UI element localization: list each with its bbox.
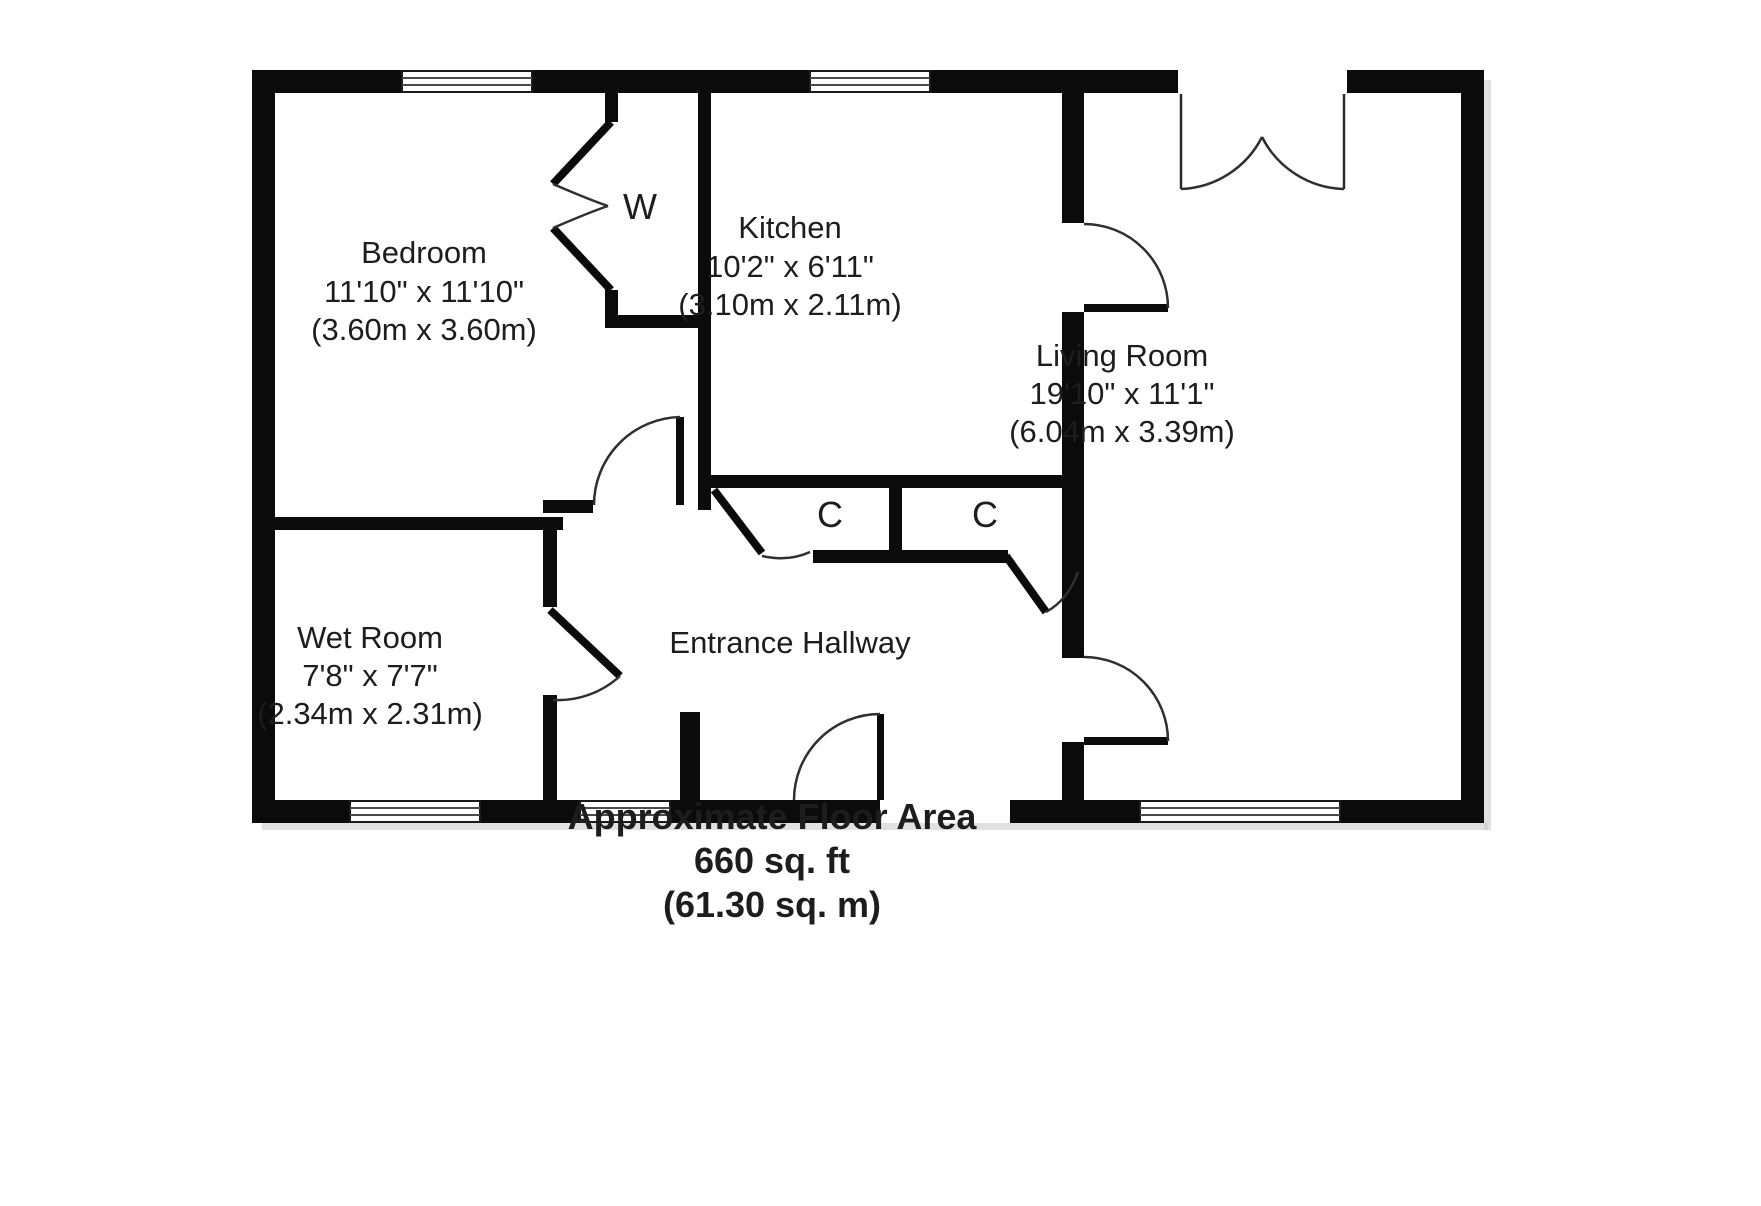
front-door-icon (794, 714, 884, 800)
room-dim-imperial: 7'8" x 7'7" (302, 658, 438, 693)
room-dim-imperial: 10'2" x 6'11" (706, 249, 874, 284)
cupboard-left-label: C (817, 494, 843, 535)
window-bedroom-icon (402, 71, 532, 92)
room-dim-metric: (2.34m x 2.31m) (257, 696, 483, 731)
floor-area-sqft: 660 sq. ft (694, 840, 850, 881)
window-kitchen-icon (810, 71, 930, 92)
window-wetroom-icon (350, 801, 480, 822)
floor-plan-page: Bedroom 11'10" x 11'10" (3.60m x 3.60m) … (0, 0, 1761, 1206)
room-dim-metric: (6.04m x 3.39m) (1009, 414, 1235, 449)
wet-room-label: Wet Room 7'8" x 7'7" (2.34m x 2.31m) (257, 620, 483, 731)
room-dim-imperial: 11'10" x 11'10" (324, 274, 524, 309)
floor-plan-drawing: Bedroom 11'10" x 11'10" (3.60m x 3.60m) … (0, 0, 1761, 1206)
room-name: Entrance Hallway (669, 625, 911, 660)
room-dim-metric: (3.60m x 3.60m) (311, 312, 537, 347)
hallway-door-icon (1084, 657, 1168, 745)
room-dim-imperial: 19'10" x 11'1" (1030, 376, 1215, 411)
floor-area-summary: Approximate Floor Area 660 sq. ft (61.30… (568, 796, 978, 925)
room-name: Bedroom (361, 235, 487, 270)
floor-area-title: Approximate Floor Area (568, 796, 978, 837)
cupboard-left-door-icon (714, 490, 810, 558)
room-labels: Bedroom 11'10" x 11'10" (3.60m x 3.60m) … (257, 186, 1235, 731)
french-doors-icon (1181, 94, 1344, 189)
kitchen-door-icon (1084, 224, 1168, 312)
wetroom-door-icon (550, 610, 620, 700)
kitchen-label: Kitchen 10'2" x 6'11" (3.10m x 2.11m) (678, 210, 901, 322)
bedroom-label: Bedroom 11'10" x 11'10" (3.60m x 3.60m) (311, 235, 537, 347)
floor-area-sqm: (61.30 sq. m) (663, 884, 881, 925)
entrance-hallway-label: Entrance Hallway (669, 625, 911, 660)
wardrobe-door-icon (553, 122, 611, 290)
wardrobe-label: W (623, 186, 657, 227)
living-room-label: Living Room 19'10" x 11'1" (6.04m x 3.39… (1009, 338, 1235, 449)
window-livingroom-icon (1140, 801, 1340, 822)
bedroom-door-icon (594, 417, 684, 505)
room-name: Kitchen (738, 210, 841, 245)
room-name: Living Room (1036, 338, 1208, 373)
room-name: Wet Room (297, 620, 443, 655)
room-dim-metric: (3.10m x 2.11m) (678, 287, 901, 322)
cupboard-right-label: C (972, 494, 998, 535)
